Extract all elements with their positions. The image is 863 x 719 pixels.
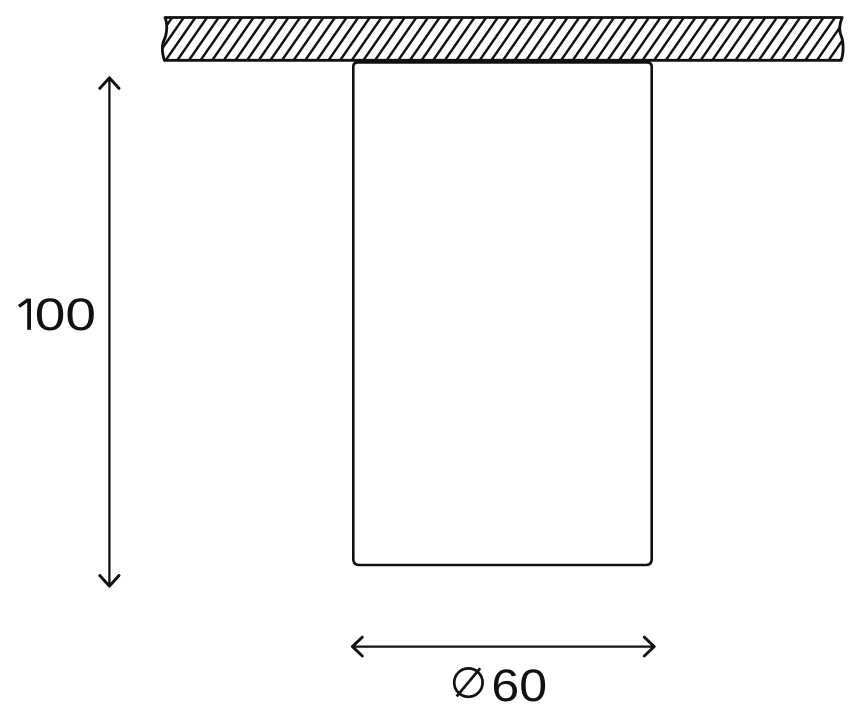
svg-text:00: 00 — [35, 289, 96, 340]
svg-text:60: 60 — [491, 661, 547, 711]
